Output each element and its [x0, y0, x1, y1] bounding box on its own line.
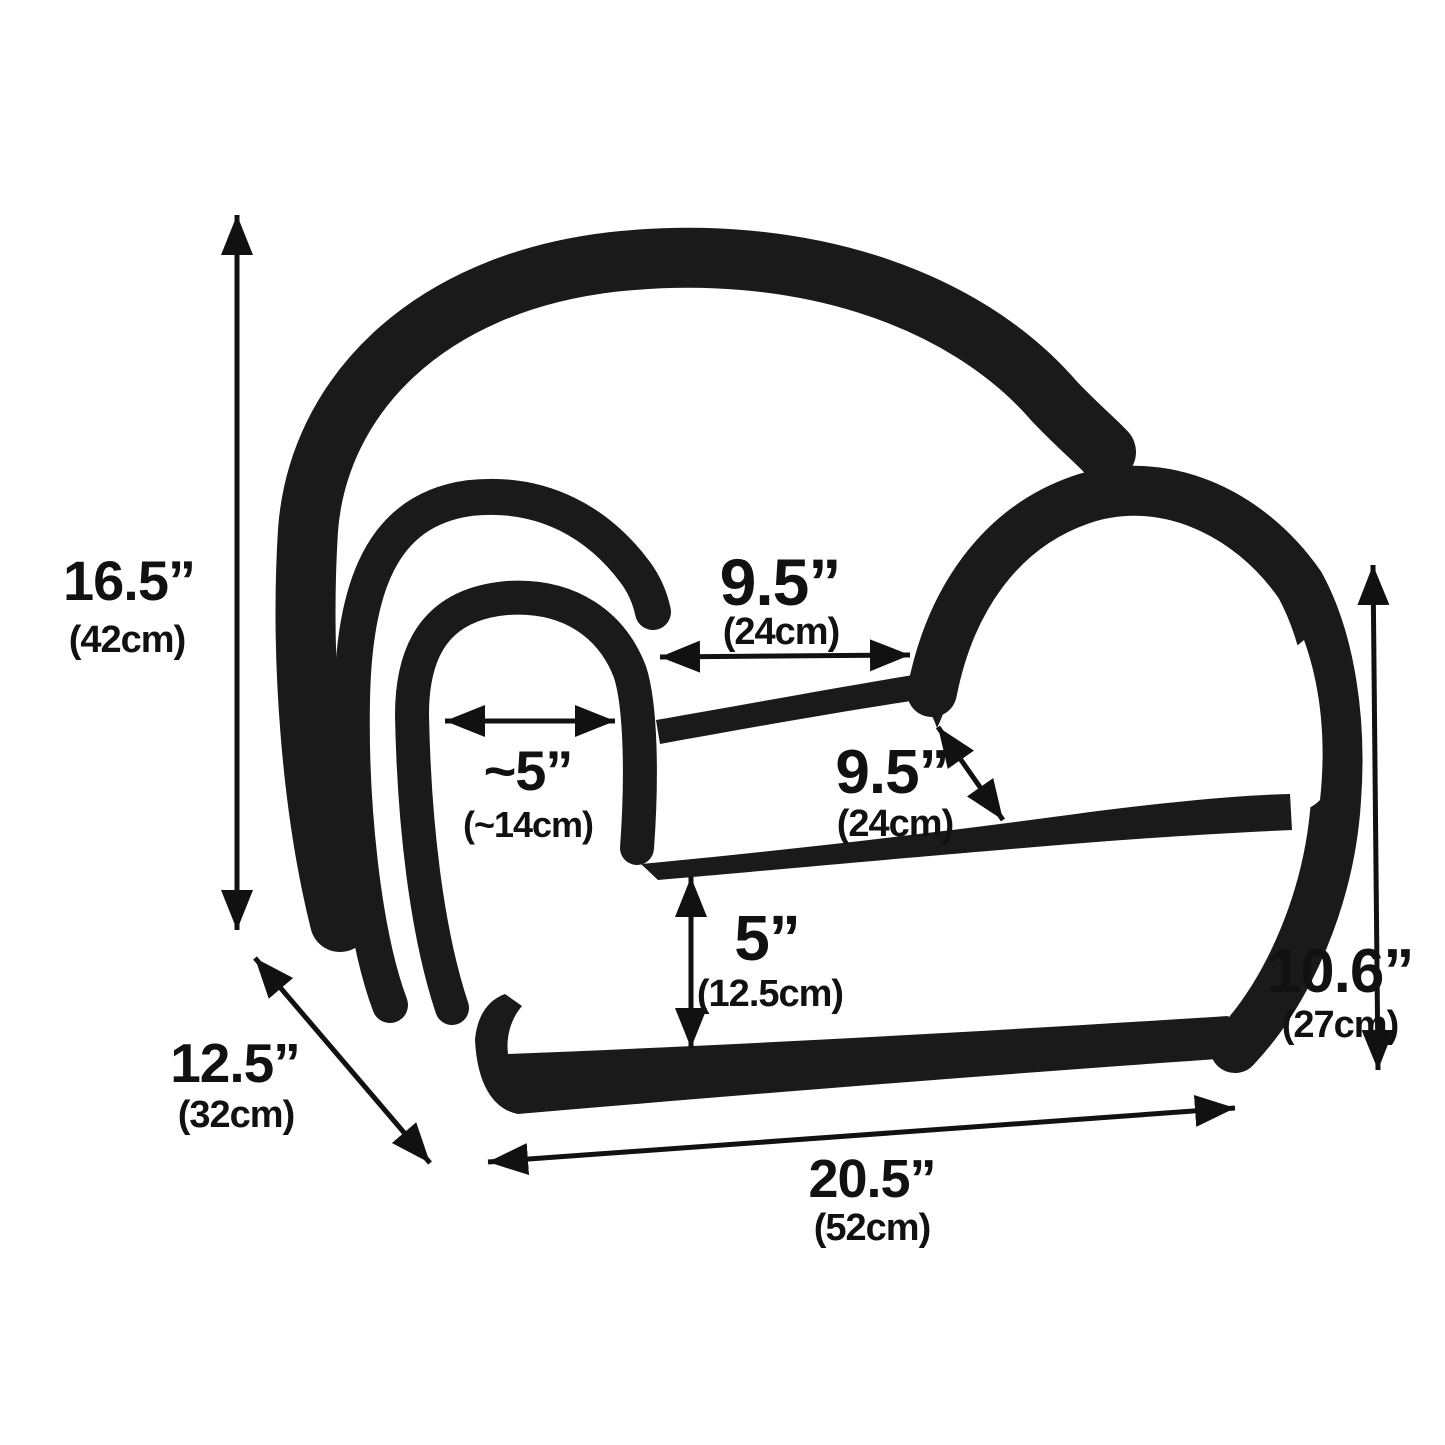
- seat-depth-label-inches: 9.5”: [835, 738, 948, 807]
- overall-height-label-inches: 16.5”: [63, 549, 195, 612]
- depth-label-inches: 12.5”: [170, 1032, 300, 1094]
- back-height-label-metric: (27cm): [1282, 1004, 1399, 1046]
- seat-height-label-inches: 5”: [734, 902, 800, 974]
- seat-width-label-inches: 9.5”: [720, 545, 841, 619]
- chair-seat-back-edge: [656, 670, 950, 744]
- overall-width-label-metric: (52cm): [814, 1207, 931, 1249]
- seat-height-label-metric: (12.5cm): [697, 973, 843, 1015]
- seat-width-label-metric: (24cm): [723, 611, 840, 653]
- chair-seat-front-edge: [641, 794, 1292, 880]
- seat-width-arrow: [660, 655, 910, 657]
- seat-depth-label-metric: (24cm): [837, 803, 954, 845]
- overall-height-label-metric: (42cm): [69, 619, 186, 661]
- chair-left-armrest: [412, 598, 640, 1008]
- chair-bottom-base: [475, 994, 1238, 1114]
- dimension-diagram: 16.5” (42cm) 12.5” (32cm) 20.5” (52cm) 1…: [0, 0, 1445, 1445]
- diagram-canvas: 16.5” (42cm) 12.5” (32cm) 20.5” (52cm) 1…: [0, 0, 1445, 1445]
- armrest-width-label-metric: (~14cm): [463, 804, 593, 845]
- overall-width-label-inches: 20.5”: [808, 1149, 935, 1209]
- depth-label-metric: (32cm): [178, 1094, 295, 1136]
- armrest-width-label-inches: ~5”: [484, 739, 573, 802]
- back-height-label-inches: 10.6”: [1267, 937, 1414, 1006]
